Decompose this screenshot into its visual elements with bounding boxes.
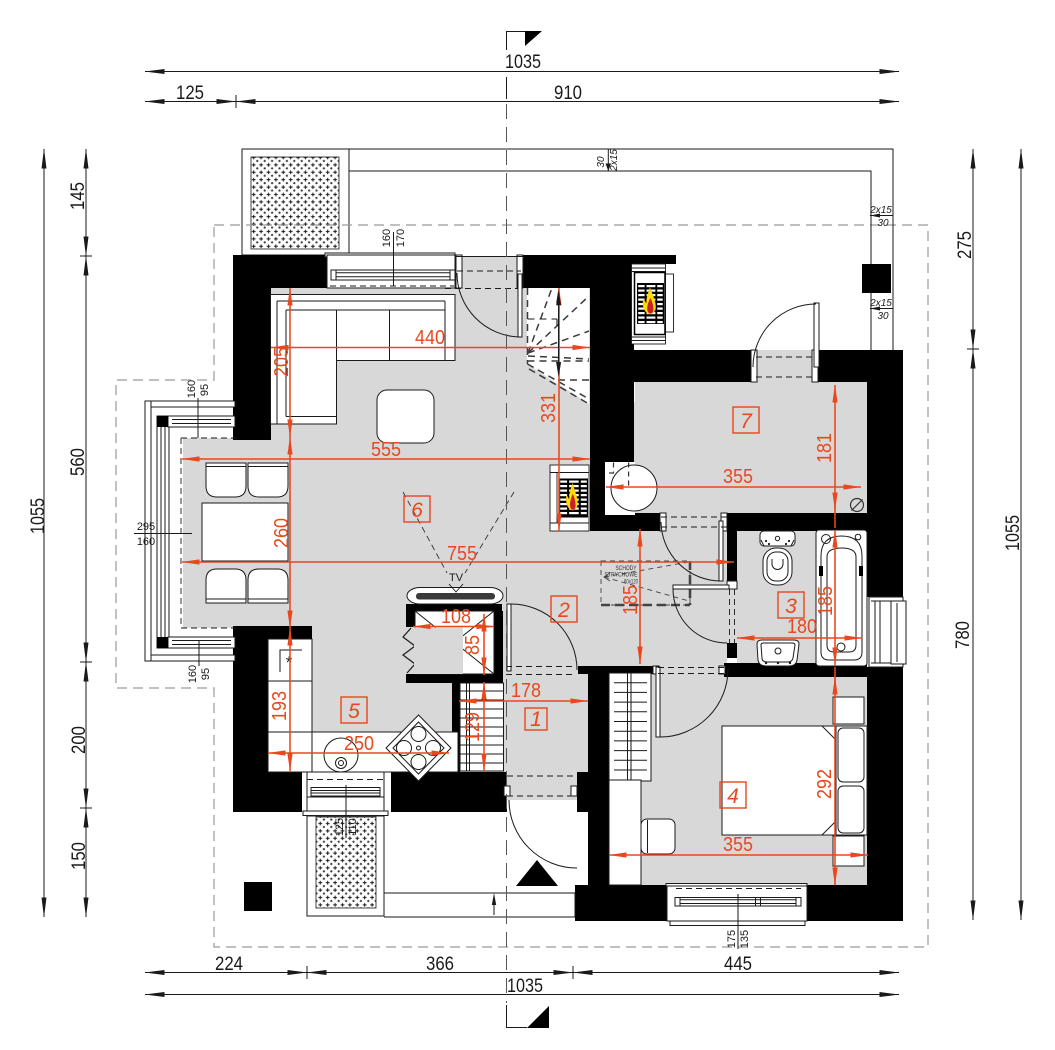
svg-text:355: 355: [723, 834, 753, 856]
svg-text:1035: 1035: [507, 976, 543, 997]
svg-text:160: 160: [186, 380, 198, 398]
svg-text:445: 445: [724, 954, 752, 975]
svg-text:110: 110: [347, 818, 359, 836]
svg-text:*: *: [286, 653, 293, 672]
svg-text:85: 85: [462, 635, 484, 655]
svg-text:TV: TV: [449, 572, 464, 584]
svg-text:180: 180: [787, 616, 817, 638]
svg-text:2x15: 2x15: [869, 205, 892, 216]
svg-text:135: 135: [739, 930, 751, 948]
svg-text:331: 331: [538, 393, 560, 423]
svg-text:560: 560: [68, 448, 89, 476]
svg-text:125: 125: [334, 818, 346, 836]
svg-text:5: 5: [348, 700, 360, 723]
svg-text:366: 366: [426, 954, 454, 975]
svg-text:185: 185: [815, 586, 837, 616]
svg-text:755: 755: [447, 543, 477, 565]
svg-text:145: 145: [68, 182, 89, 210]
svg-text:170: 170: [395, 229, 407, 247]
svg-text:200: 200: [69, 726, 90, 754]
svg-text:160: 160: [137, 536, 155, 548]
svg-text:910: 910: [554, 83, 582, 104]
svg-text:780: 780: [953, 621, 974, 649]
svg-text:30: 30: [877, 311, 889, 322]
svg-text:440: 440: [415, 327, 445, 349]
svg-text:205: 205: [271, 347, 293, 377]
svg-text:160: 160: [187, 665, 199, 683]
svg-text:2x15: 2x15: [869, 298, 892, 309]
svg-text:7: 7: [740, 410, 753, 433]
svg-text:1: 1: [530, 708, 542, 731]
svg-text:260: 260: [271, 518, 293, 548]
svg-text:60x120: 60x120: [624, 579, 638, 586]
svg-text:108: 108: [441, 606, 471, 628]
svg-text:3: 3: [785, 595, 797, 618]
svg-text:185: 185: [620, 585, 642, 615]
svg-text:STRYCHOWE: STRYCHOWE: [605, 572, 639, 579]
svg-text:224: 224: [215, 954, 243, 975]
svg-text:1035: 1035: [505, 52, 541, 73]
svg-text:181: 181: [814, 433, 836, 463]
svg-text:4: 4: [727, 785, 739, 808]
svg-text:30: 30: [877, 218, 889, 229]
svg-text:95: 95: [200, 668, 212, 680]
svg-text:160: 160: [381, 229, 393, 247]
svg-text:355: 355: [723, 466, 753, 488]
svg-text:555: 555: [371, 439, 401, 461]
svg-text:95: 95: [199, 384, 211, 396]
svg-text:2x15: 2x15: [609, 149, 620, 172]
svg-text:178: 178: [511, 680, 541, 702]
svg-text:1055: 1055: [28, 498, 49, 534]
svg-text:250: 250: [344, 733, 374, 755]
svg-text:30: 30: [596, 156, 607, 168]
svg-text:129: 129: [462, 712, 484, 742]
svg-text:292: 292: [814, 769, 836, 799]
svg-text:150: 150: [69, 842, 90, 870]
svg-text:295: 295: [137, 521, 155, 533]
svg-text:2: 2: [557, 599, 570, 622]
svg-text:6: 6: [411, 499, 423, 522]
svg-text:193: 193: [269, 691, 291, 721]
svg-text:1055: 1055: [1003, 515, 1024, 551]
svg-text:125: 125: [176, 83, 204, 104]
svg-text:175: 175: [726, 930, 738, 948]
svg-text:275: 275: [955, 231, 976, 259]
